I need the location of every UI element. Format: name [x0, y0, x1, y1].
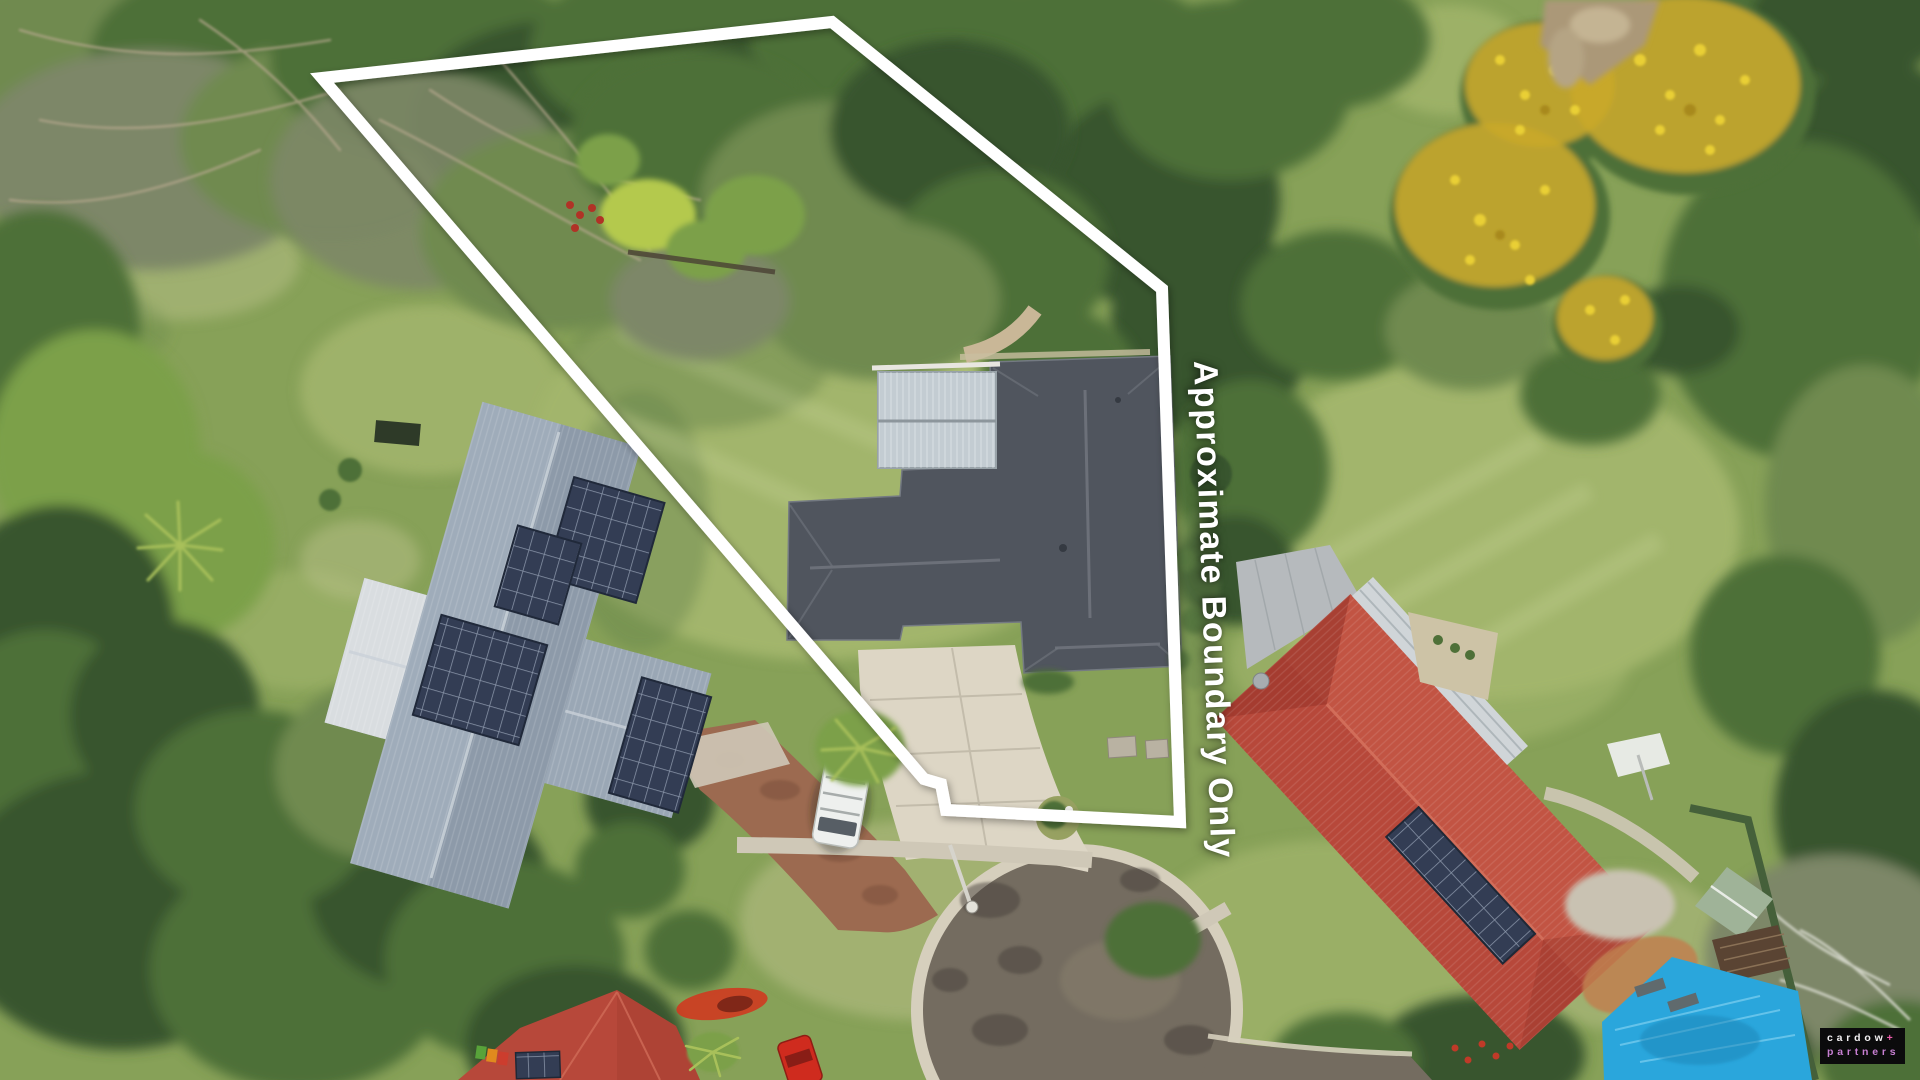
- shade-structure: [374, 420, 421, 446]
- concrete-pad: [1107, 736, 1136, 758]
- watermark-word: cardow: [1827, 1032, 1887, 1044]
- agency-watermark: cardow+ partners: [1820, 1028, 1905, 1064]
- concrete-pad: [1145, 739, 1168, 758]
- satellite-dish: [1253, 673, 1269, 689]
- bottom-left-solar: [516, 1051, 561, 1079]
- subject-house-skylight-roof: [872, 364, 1000, 468]
- aerial-scene: [0, 0, 1920, 1080]
- watermark-plus: +: [1887, 1032, 1897, 1044]
- watermark-partners: partners: [1827, 1046, 1899, 1060]
- roof-vent: [1059, 544, 1067, 552]
- aerial-photo: Approximate Boundary Only cardow+ partne…: [0, 0, 1920, 1080]
- bush: [1105, 902, 1201, 978]
- roof-vent: [1115, 397, 1121, 403]
- streetlight-head: [966, 901, 978, 913]
